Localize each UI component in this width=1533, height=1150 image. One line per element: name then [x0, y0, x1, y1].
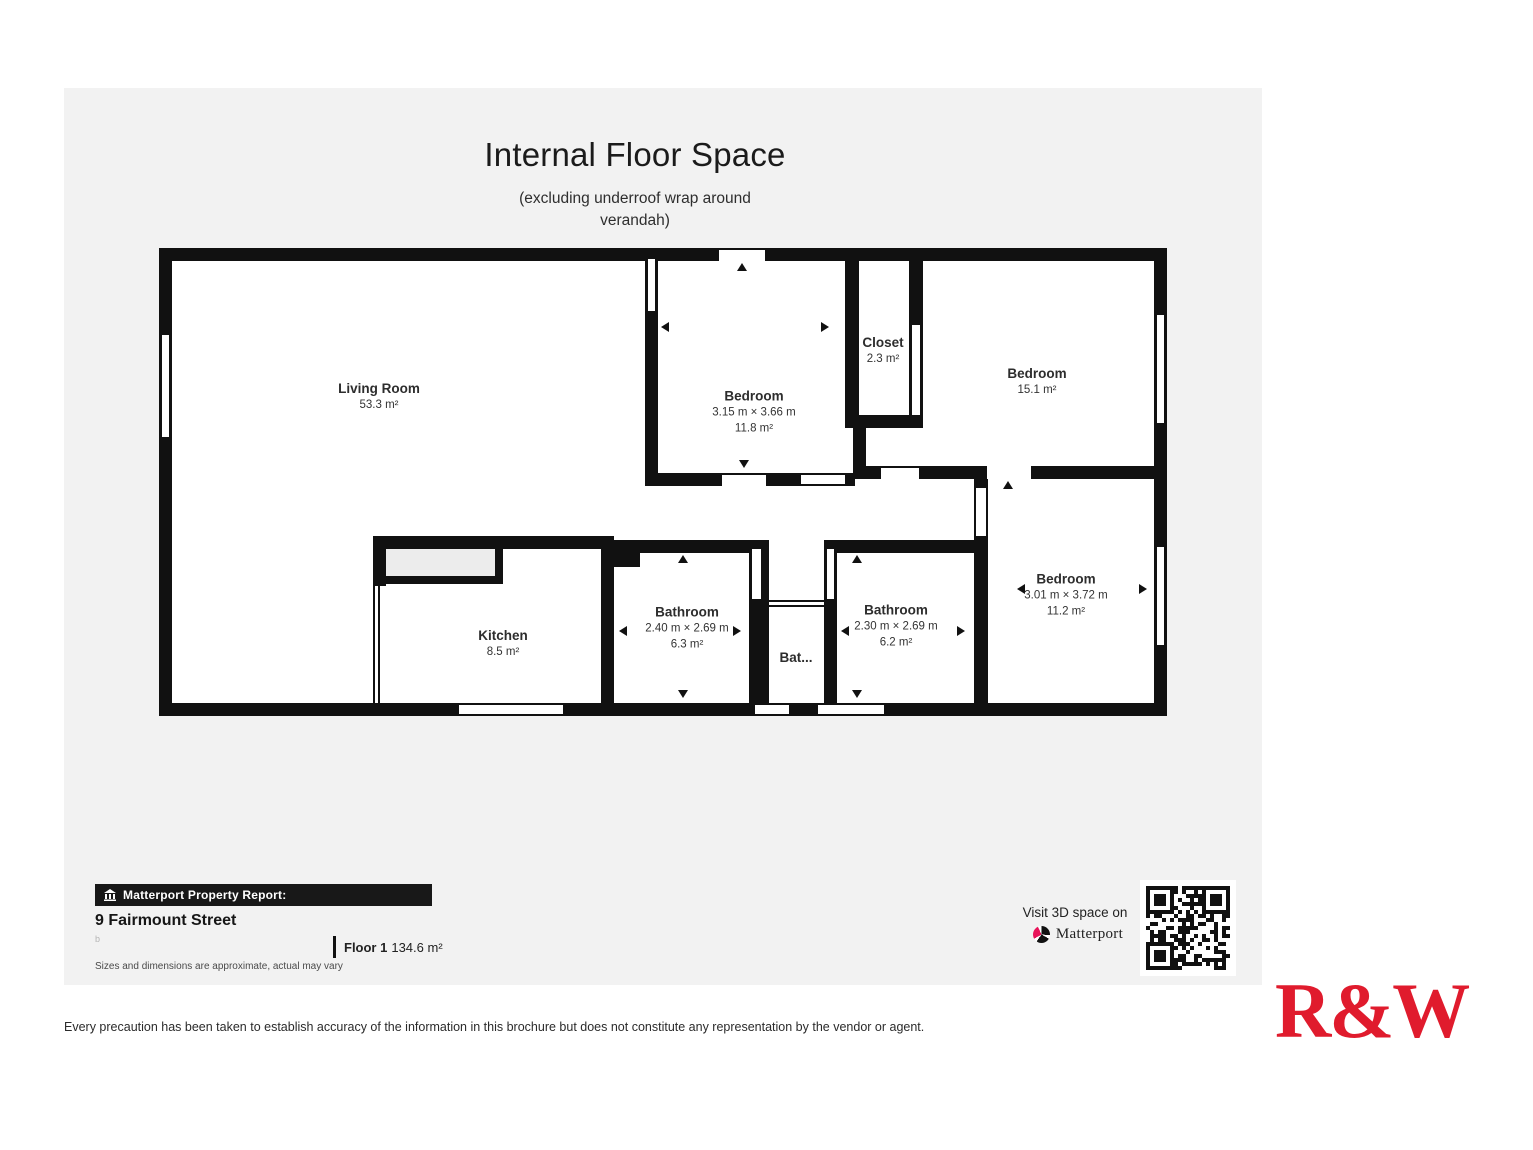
- floor-summary: Floor 1134.6 m²: [333, 936, 443, 958]
- divider: [333, 936, 336, 958]
- room-area: 8.5 m²: [478, 645, 528, 661]
- room-name: Bathroom: [854, 601, 937, 619]
- window: [826, 548, 835, 600]
- door-arrow-icon: [852, 555, 862, 563]
- wall: [373, 536, 614, 549]
- room-name: Bat...: [779, 649, 812, 667]
- room-name: Kitchen: [478, 627, 528, 645]
- window: [647, 258, 656, 312]
- room-dims: 2.40 m × 2.69 m: [645, 622, 728, 638]
- room-label-kitchen: Kitchen 8.5 m²: [478, 627, 528, 661]
- room-label-bathroom-left: Bathroom 2.40 m × 2.69 m 6.3 m²: [645, 603, 728, 652]
- door-arrow-icon: [1139, 584, 1147, 594]
- room-area: 2.3 m²: [862, 352, 903, 368]
- door-arrow-icon: [678, 555, 688, 563]
- door-opening: [719, 250, 765, 261]
- report-bar-label: Matterport Property Report:: [123, 888, 286, 902]
- room-area: 53.3 m²: [338, 398, 420, 414]
- room-area: 6.2 m²: [854, 635, 937, 651]
- wall: [845, 248, 859, 428]
- room-area: 15.1 m²: [1007, 383, 1066, 399]
- room-area: 11.2 m²: [1024, 604, 1107, 620]
- qr-code-box[interactable]: [1140, 880, 1236, 976]
- room-label-bedroom-top-right: Bedroom 15.1 m²: [1007, 365, 1066, 399]
- qr-code: [1146, 886, 1230, 970]
- door-arrow-icon: [1003, 481, 1013, 489]
- page-title: Internal Floor Space: [0, 136, 1270, 174]
- window: [751, 548, 762, 600]
- matterport-logo-icon: [1033, 926, 1050, 943]
- room-area: 11.8 m²: [712, 421, 795, 437]
- door-opening: [722, 475, 766, 486]
- wall: [601, 540, 769, 553]
- floor-plan: Living Room 53.3 m² Bedroom 3.15 m × 3.6…: [159, 248, 1167, 716]
- door-arrow-icon: [619, 626, 627, 636]
- room-dims: 2.30 m × 2.69 m: [854, 620, 937, 636]
- door-opening: [987, 466, 1031, 479]
- room-label-bedroom-bottom: Bedroom 3.01 m × 3.72 m 11.2 m²: [1024, 570, 1107, 619]
- window: [458, 704, 564, 715]
- door-arrow-icon: [661, 322, 669, 332]
- door-arrow-icon: [737, 263, 747, 271]
- room-name: Bathroom: [645, 603, 728, 621]
- room-label-bedroom-mid: Bedroom 3.15 m × 3.66 m 11.8 m²: [712, 387, 795, 436]
- property-address: 9 Fairmount Street: [95, 912, 236, 930]
- dimensions-note: Sizes and dimensions are approximate, ac…: [95, 961, 343, 972]
- door-arrow-icon: [957, 626, 965, 636]
- visit-3d-text: Visit 3D space on: [1020, 905, 1130, 920]
- door-arrow-icon: [733, 626, 741, 636]
- window: [911, 324, 921, 416]
- door-arrow-icon: [739, 460, 749, 468]
- room-name: Bedroom: [712, 387, 795, 405]
- wall: [845, 415, 923, 428]
- opening-partition: [769, 600, 824, 607]
- wall: [495, 544, 503, 584]
- room-area: 6.3 m²: [645, 637, 728, 653]
- door-arrow-icon: [678, 690, 688, 698]
- stray-mark: b: [95, 934, 100, 944]
- window: [817, 704, 885, 715]
- window: [1156, 546, 1165, 646]
- wall: [159, 248, 1167, 261]
- floor-area: 134.6 m²: [391, 940, 442, 955]
- room-name: Living Room: [338, 380, 420, 398]
- window: [1156, 314, 1165, 424]
- matterport-link[interactable]: Matterport: [1020, 926, 1136, 943]
- room-dims: 3.15 m × 3.66 m: [712, 406, 795, 422]
- room-label-bat-truncated: Bat...: [779, 649, 812, 667]
- room-label-bathroom-right: Bathroom 2.30 m × 2.69 m 6.2 m²: [854, 601, 937, 650]
- room-dims: 3.01 m × 3.72 m: [1024, 589, 1107, 605]
- room-name: Bedroom: [1007, 365, 1066, 383]
- subtitle-line-1: (excluding underroof wrap around: [519, 190, 751, 207]
- door-opening: [881, 468, 919, 479]
- rw-agency-logo: R&W: [1275, 972, 1468, 1050]
- door-opening: [976, 488, 986, 536]
- wall: [159, 703, 1167, 716]
- subtitle-line-2: verandah): [600, 212, 670, 229]
- disclaimer-text: Every precaution has been taken to estab…: [64, 1020, 924, 1034]
- window: [800, 474, 846, 485]
- window: [161, 334, 170, 438]
- floor-label: Floor 1: [344, 940, 387, 955]
- window: [754, 704, 790, 715]
- door-arrow-icon: [821, 322, 829, 332]
- kitchen-counter: [386, 549, 495, 576]
- matterport-wordmark: Matterport: [1056, 926, 1123, 943]
- room-label-living-room: Living Room 53.3 m²: [338, 380, 420, 414]
- room-name: Closet: [862, 334, 903, 352]
- home-icon: [104, 889, 116, 901]
- wall: [601, 536, 614, 716]
- wall: [159, 248, 172, 716]
- matterport-report-bar: Matterport Property Report:: [95, 884, 432, 906]
- door-arrow-icon: [841, 626, 849, 636]
- door-arrow-icon: [852, 690, 862, 698]
- wall: [381, 576, 503, 584]
- page-subtitle: (excluding underroof wrap around veranda…: [0, 188, 1270, 233]
- opening-partition: [373, 586, 380, 703]
- wall: [824, 540, 988, 553]
- room-name: Bedroom: [1024, 570, 1107, 588]
- room-label-closet: Closet 2.3 m²: [862, 334, 903, 368]
